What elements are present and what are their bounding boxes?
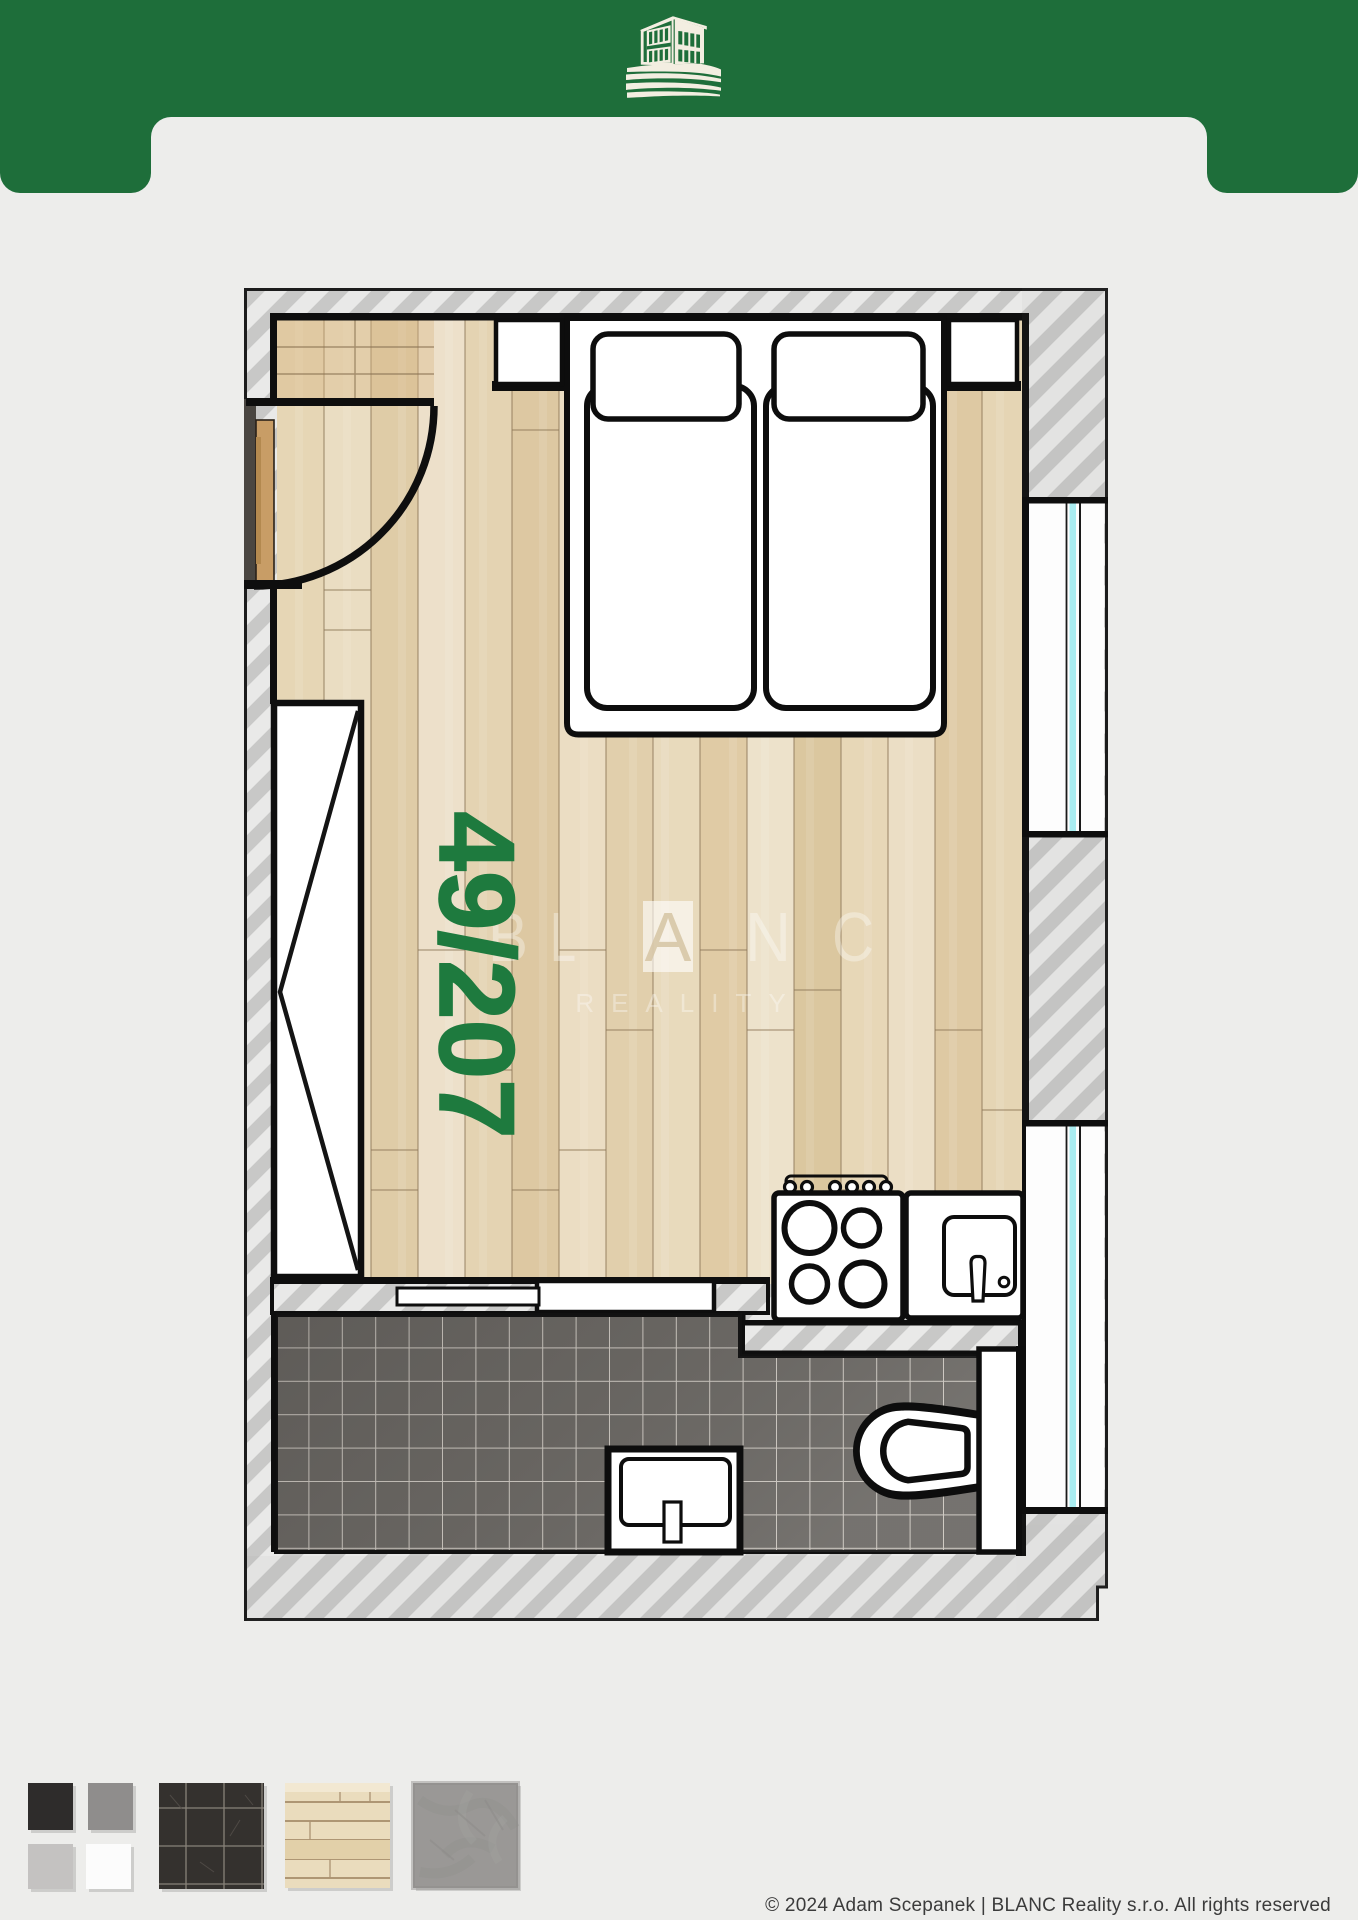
svg-text:A: A — [645, 898, 692, 976]
svg-text:N: N — [745, 898, 791, 976]
svg-text:© 2024 Adam Scepanek | BLANC R: © 2024 Adam Scepanek | BLANC Reality s.r… — [765, 1895, 1331, 1916]
svg-text:REALITY: REALITY — [575, 988, 802, 1018]
svg-text:L: L — [550, 898, 576, 976]
svg-text:C: C — [832, 898, 874, 976]
svg-text:49/207: 49/207 — [417, 811, 537, 1138]
